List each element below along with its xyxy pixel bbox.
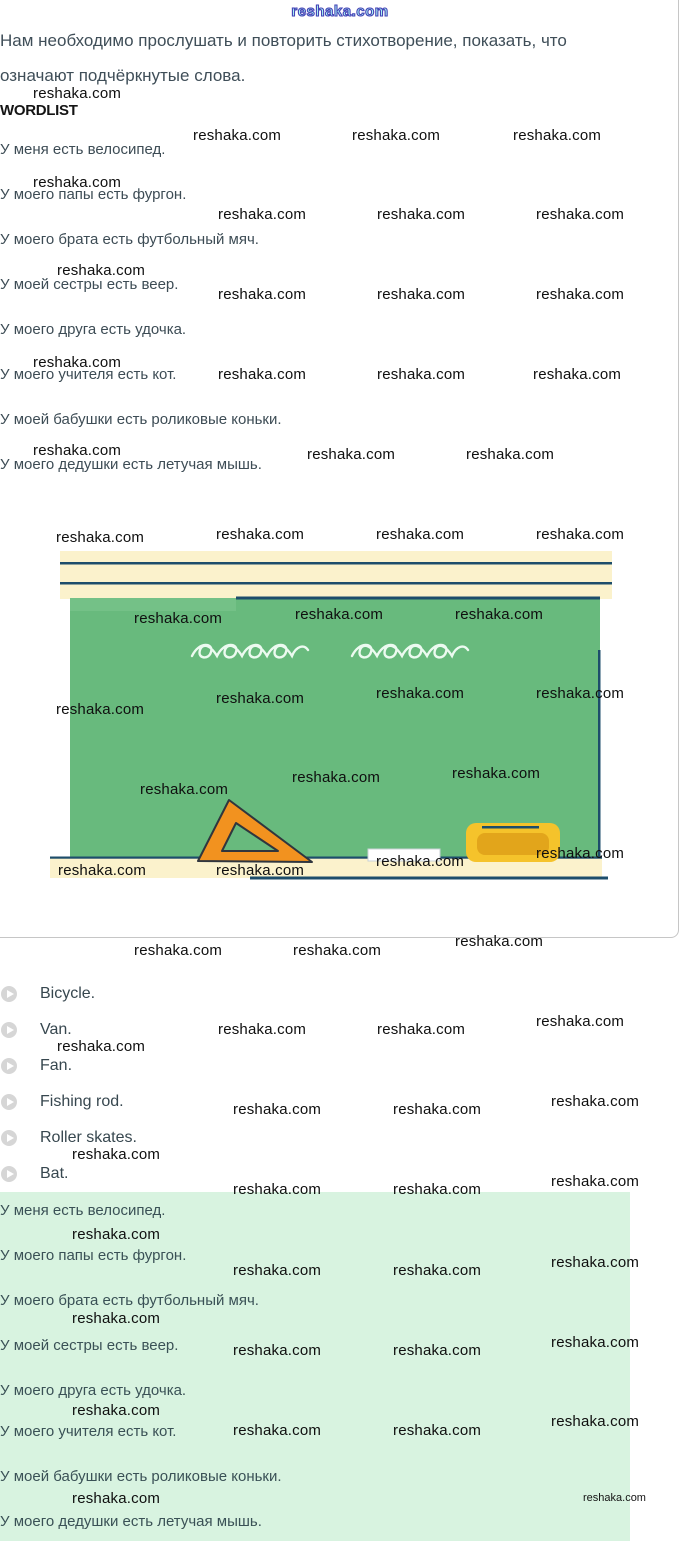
watermark: reshaka.com bbox=[551, 1413, 639, 1430]
task-instruction-line2: означают подчёркнутые слова. bbox=[0, 66, 245, 86]
answer-highlight bbox=[0, 1192, 630, 1541]
play-icon[interactable] bbox=[1, 1022, 17, 1038]
watermark: reshaka.com bbox=[58, 862, 146, 879]
answer-sentence: У моего друга есть удочка. bbox=[0, 1382, 186, 1399]
watermark: reshaka.com bbox=[216, 862, 304, 879]
watermark: reshaka.com bbox=[536, 685, 624, 702]
watermark: reshaka.com bbox=[455, 933, 543, 950]
wordlist-heading: WORDLIST bbox=[0, 102, 78, 119]
watermark: reshaka.com bbox=[57, 1038, 145, 1055]
watermark: reshaka.com bbox=[72, 1402, 160, 1419]
watermark: reshaka.com bbox=[551, 1173, 639, 1190]
watermark: reshaka.com bbox=[377, 366, 465, 383]
watermark: reshaka.com bbox=[455, 606, 543, 623]
watermark: reshaka.com bbox=[72, 1310, 160, 1327]
audio-item-label: Fan. bbox=[40, 1057, 72, 1075]
watermark: reshaka.com bbox=[393, 1342, 481, 1359]
watermark: reshaka.com bbox=[452, 765, 540, 782]
watermark: reshaka.com bbox=[466, 446, 554, 463]
answer-sentence: У моего брата есть футбольный мяч. bbox=[0, 1292, 259, 1309]
play-icon[interactable] bbox=[1, 1166, 17, 1182]
chalkboard bbox=[70, 598, 600, 862]
watermark: reshaka.com bbox=[56, 701, 144, 718]
watermark: reshaka.com bbox=[292, 769, 380, 786]
watermark: reshaka.com bbox=[33, 174, 121, 191]
watermark: reshaka.com bbox=[33, 85, 121, 102]
watermark: reshaka.com bbox=[33, 354, 121, 371]
wordlist-sentence: У моего друга есть удочка. bbox=[0, 321, 186, 338]
wordlist-sentence: У моего брата есть футбольный мяч. bbox=[0, 231, 259, 248]
board-banner bbox=[60, 551, 612, 599]
audio-item-label: Van. bbox=[40, 1021, 72, 1039]
watermark: reshaka.com bbox=[307, 446, 395, 463]
play-icon[interactable] bbox=[1, 986, 17, 1002]
page: reshaka.com Нам необходимо прослушать и … bbox=[0, 0, 680, 1541]
watermark: reshaka.com bbox=[218, 366, 306, 383]
task-instruction-line1: Нам необходимо прослушать и повторить ст… bbox=[0, 31, 567, 51]
answer-sentence: У моей бабушки есть роликовые коньки. bbox=[0, 1468, 282, 1485]
watermark: reshaka.com bbox=[56, 529, 144, 546]
watermark: reshaka.com bbox=[551, 1093, 639, 1110]
watermark: reshaka.com bbox=[233, 1101, 321, 1118]
watermark: reshaka.com bbox=[393, 1262, 481, 1279]
watermark: reshaka.com bbox=[393, 1422, 481, 1439]
watermark: reshaka.com bbox=[393, 1101, 481, 1118]
play-icon[interactable] bbox=[1, 1058, 17, 1074]
watermark: reshaka.com bbox=[57, 262, 145, 279]
watermark: reshaka.com bbox=[72, 1226, 160, 1243]
watermark: reshaka.com bbox=[536, 1013, 624, 1030]
watermark: reshaka.com bbox=[233, 1181, 321, 1198]
banner-line-top bbox=[60, 562, 612, 565]
watermark: reshaka.com bbox=[377, 206, 465, 223]
watermark: reshaka.com bbox=[293, 942, 381, 959]
play-icon[interactable] bbox=[1, 1130, 17, 1146]
audio-item-label: Bat. bbox=[40, 1165, 68, 1183]
answer-sentence: У моей сестры есть веер. bbox=[0, 1337, 178, 1354]
watermark: reshaka.com bbox=[536, 206, 624, 223]
watermark: reshaka.com bbox=[233, 1342, 321, 1359]
watermark: reshaka.com bbox=[393, 1181, 481, 1198]
answer-sentence: У меня есть велосипед. bbox=[0, 1202, 165, 1219]
watermark: reshaka.com bbox=[376, 853, 464, 870]
audio-item-label: Bicycle. bbox=[40, 985, 95, 1003]
watermark: reshaka.com bbox=[233, 1262, 321, 1279]
watermark: reshaka.com bbox=[216, 526, 304, 543]
watermark: reshaka.com bbox=[551, 1334, 639, 1351]
watermark: reshaka.com bbox=[376, 526, 464, 543]
answer-sentence: У моего папы есть фургон. bbox=[0, 1247, 186, 1264]
audio-item-label: Roller skates. bbox=[40, 1129, 137, 1147]
watermark: reshaka.com bbox=[218, 286, 306, 303]
watermark: reshaka.com bbox=[352, 127, 440, 144]
watermark: reshaka.com bbox=[134, 942, 222, 959]
watermark: reshaka.com bbox=[218, 206, 306, 223]
watermark: reshaka.com bbox=[377, 1021, 465, 1038]
watermark: reshaka.com bbox=[551, 1254, 639, 1271]
board-top-line bbox=[236, 597, 600, 600]
answer-sentence: У моего учителя есть кот. bbox=[0, 1423, 176, 1440]
watermark: reshaka.com bbox=[536, 286, 624, 303]
watermark: reshaka.com bbox=[536, 526, 624, 543]
wordlist-sentence: У меня есть велосипед. bbox=[0, 141, 165, 158]
watermark: reshaka.com bbox=[33, 442, 121, 459]
watermark: reshaka.com bbox=[193, 127, 281, 144]
watermark: reshaka.com bbox=[377, 286, 465, 303]
watermark: reshaka.com bbox=[72, 1146, 160, 1163]
watermark-top: reshaka.com bbox=[0, 3, 680, 20]
watermark-small: reshaka.com bbox=[583, 1492, 646, 1504]
watermark: reshaka.com bbox=[536, 845, 624, 862]
watermark: reshaka.com bbox=[72, 1490, 160, 1507]
watermark: reshaka.com bbox=[295, 606, 383, 623]
audio-item-label: Fishing rod. bbox=[40, 1093, 124, 1111]
answer-sentence: У моего дедушки есть летучая мышь. bbox=[0, 1513, 262, 1530]
board-right-line bbox=[598, 650, 601, 862]
watermark: reshaka.com bbox=[533, 366, 621, 383]
watermark: reshaka.com bbox=[140, 781, 228, 798]
wordlist-sentence: У моей бабушки есть роликовые коньки. bbox=[0, 411, 282, 428]
watermark: reshaka.com bbox=[216, 690, 304, 707]
watermark: reshaka.com bbox=[233, 1422, 321, 1439]
watermark: reshaka.com bbox=[376, 685, 464, 702]
banner-line-bottom bbox=[60, 582, 612, 585]
watermark: reshaka.com bbox=[134, 610, 222, 627]
watermark: reshaka.com bbox=[218, 1021, 306, 1038]
watermark: reshaka.com bbox=[513, 127, 601, 144]
board-eraser-line bbox=[482, 826, 539, 829]
play-icon[interactable] bbox=[1, 1094, 17, 1110]
